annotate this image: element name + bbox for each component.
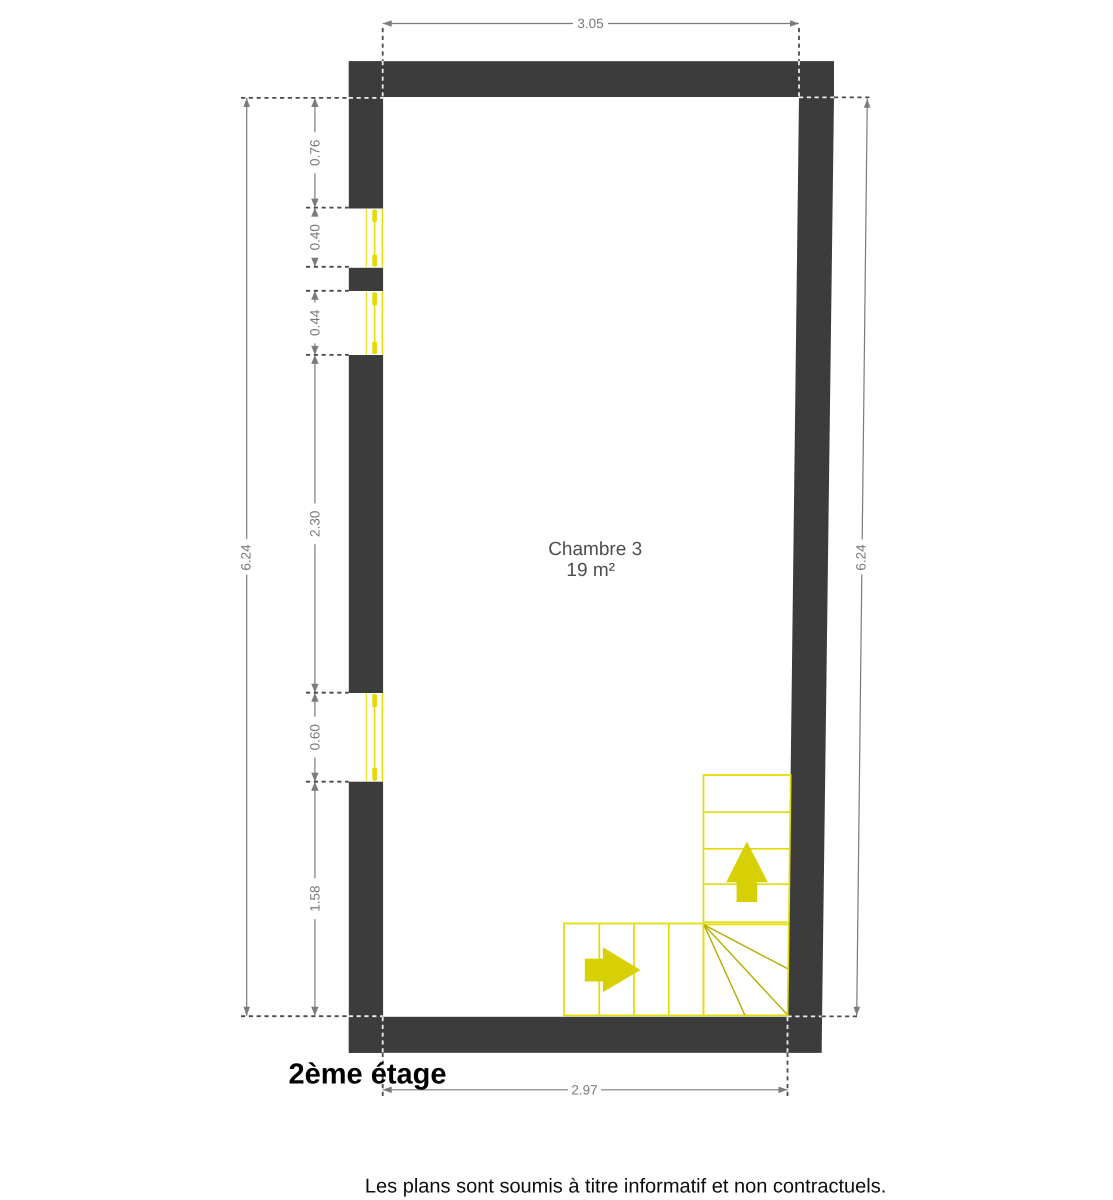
svg-text:0.76: 0.76 bbox=[307, 140, 322, 166]
svg-text:0.40: 0.40 bbox=[307, 224, 322, 250]
svg-text:3.05: 3.05 bbox=[577, 16, 603, 31]
svg-text:6.24: 6.24 bbox=[854, 544, 869, 571]
svg-text:Les plans sont soumis à titre: Les plans sont soumis à titre informatif… bbox=[365, 1176, 886, 1198]
svg-text:2.30: 2.30 bbox=[307, 511, 322, 537]
svg-text:0.60: 0.60 bbox=[307, 724, 322, 750]
svg-text:2.97: 2.97 bbox=[571, 1083, 597, 1098]
svg-text:0.44: 0.44 bbox=[307, 309, 322, 336]
svg-text:19 m²: 19 m² bbox=[566, 560, 615, 581]
svg-text:1.58: 1.58 bbox=[307, 885, 322, 911]
svg-text:6.24: 6.24 bbox=[238, 544, 253, 571]
svg-text:Chambre 3: Chambre 3 bbox=[548, 539, 642, 560]
svg-text:2ème étage: 2ème étage bbox=[289, 1059, 447, 1091]
